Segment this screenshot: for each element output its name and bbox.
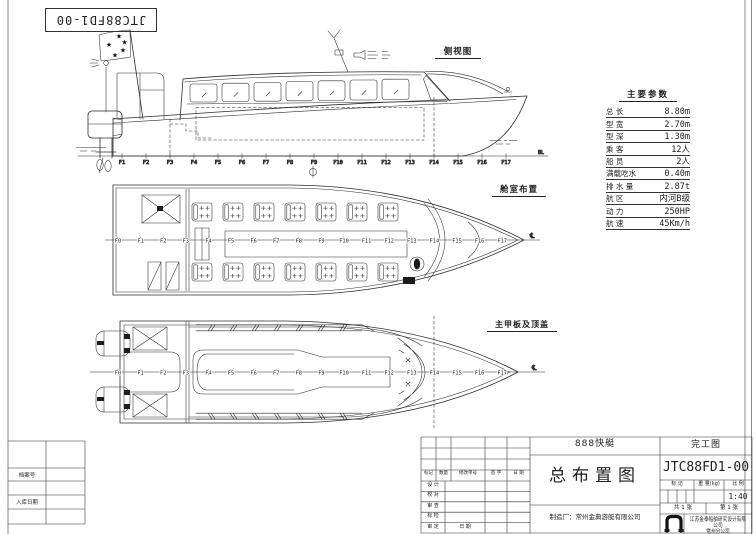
mark-header: 标 记 — [660, 482, 694, 488]
param-row: 总 长8.80m — [606, 106, 690, 118]
frame-label: F11 — [362, 238, 372, 244]
param-value: 1.30m — [664, 132, 690, 142]
param-row: 满载吃水0.40m — [606, 168, 690, 180]
frame-label: F15 — [453, 160, 463, 166]
param-label: 满载吃水 — [606, 168, 636, 179]
frame-label: F4 — [205, 370, 211, 376]
weight-header: 重 量(kg) — [694, 482, 724, 488]
frame-label: F5 — [228, 238, 234, 244]
param-row: 型 宽2.70m — [606, 118, 690, 130]
horn-icon — [354, 51, 390, 60]
param-row: 型 深1.30m — [606, 131, 690, 143]
corner-block-grid — [8, 441, 85, 524]
cabin-view-label: 舱室布置 — [492, 183, 546, 197]
frame-label: F17 — [501, 160, 511, 166]
frame-label: F0 — [115, 238, 121, 244]
drawing-number: JTC88FD1-00 — [660, 461, 752, 475]
param-value: 0.40m — [664, 169, 690, 179]
param-label: 乘 客 — [606, 144, 623, 155]
drawing-number-rotated: JTC88FD1-00 — [56, 13, 146, 27]
drawing-title: 总布置图 — [530, 467, 660, 486]
frame-label: F2 — [160, 238, 166, 244]
frame-label: F16 — [475, 370, 485, 376]
frame-label: F12 — [384, 370, 394, 376]
frame-label: F14 — [430, 238, 440, 244]
frame-label: F3 — [167, 160, 173, 166]
frame-label: F15 — [452, 370, 462, 376]
frame-label: F13 — [405, 160, 415, 166]
drawing-sheet: F1F2F3F4F5F6F7F8F9F10F11F12F13F14F15F16F… — [0, 0, 756, 534]
flag-star-icon: ★ — [120, 47, 126, 55]
frame-label: F17 — [497, 370, 507, 376]
date-label: 日 期 — [445, 525, 485, 531]
param-label: 排 水 量 — [606, 181, 633, 192]
deck-view-label: 主甲板及顶盖 — [487, 319, 557, 332]
parameters-table: 主要参数 总 长8.80m 型 宽2.70m 型 深1.30m 乘 客12人 船… — [606, 88, 690, 230]
frame-label: F6 — [239, 160, 245, 166]
rev-header-mark: 标记 — [421, 472, 436, 477]
frame-label: F13 — [407, 370, 417, 376]
frame-label: F16 — [475, 238, 485, 244]
frame-label: F6 — [250, 370, 256, 376]
frame-label: F5 — [228, 370, 234, 376]
frame-label: F8 — [287, 160, 293, 166]
frame-scale-deck: F0F1F2F3F4F5F6F7F8F9F10F11F12F13F14F15F1… — [115, 369, 507, 376]
frame-label: F9 — [318, 370, 324, 376]
rev-header-sign: 签 字 — [485, 472, 507, 477]
flag-star-icon: ★ — [112, 52, 118, 60]
design-company: 江苏金泰船舶研究设计有限公司 常州分公司 — [689, 517, 747, 534]
frame-label: F10 — [339, 370, 349, 376]
cabin-windows — [190, 76, 448, 103]
param-label: 总 长 — [606, 106, 623, 117]
frame-label: F9 — [311, 160, 317, 166]
param-label: 动 力 — [606, 206, 623, 217]
rev-header-order: 修改单号 — [451, 472, 485, 477]
design-company-name: 江苏金泰船舶研究设计有限公司 — [689, 517, 747, 529]
frame-label: F0 — [115, 370, 121, 376]
param-label: 船 员 — [606, 156, 623, 167]
param-row: 动 力250HP — [606, 205, 690, 217]
company-logo — [665, 517, 684, 533]
frame-label: F3 — [183, 238, 189, 244]
param-value: 2.70m — [664, 120, 690, 130]
deck-plan-view: F0F1F2F3F4F5F6F7F8F9F10F11F12F13F14F15F1… — [90, 316, 545, 428]
frame-label: F4 — [191, 160, 197, 166]
frame-scale-side: F1F2F3F4F5F6F7F8F9F10F11F12F13F14F15F16F… — [119, 154, 511, 167]
frame-label: F10 — [339, 238, 349, 244]
inbound-date-label: 入库日期 — [8, 498, 46, 506]
centerline-mark: ℄ — [531, 364, 537, 372]
param-value: 2.87t — [664, 182, 690, 192]
frame-label: F2 — [143, 160, 149, 166]
frame-label: F1 — [137, 370, 143, 376]
param-value: 内河B级 — [659, 192, 690, 204]
outboard-motors-plan — [96, 331, 130, 412]
sheets-total: 共 1 张 — [660, 505, 706, 511]
frame-label: F1 — [137, 238, 143, 244]
frame-label: F7 — [273, 238, 279, 244]
frame-label: F12 — [384, 238, 394, 244]
stern-light-icon — [90, 59, 108, 112]
frame-label: F10 — [333, 160, 343, 166]
frame-label: F6 — [250, 238, 256, 244]
rev-header-date: 日 期 — [507, 472, 530, 477]
parameters-title: 主要参数 — [619, 88, 677, 102]
flag-star-icon: ★ — [106, 41, 112, 49]
frame-label: F11 — [362, 370, 372, 376]
frame-label: F8 — [296, 370, 302, 376]
frame-label: F3 — [183, 370, 189, 376]
drawing-stage: 完工图 — [660, 441, 752, 451]
sign-row-design: 设 计 — [421, 483, 445, 489]
frame-label: F2 — [160, 370, 166, 376]
param-label: 航 区 — [606, 193, 623, 204]
frame-label: F5 — [215, 160, 221, 166]
steering-wheel-icon — [403, 257, 424, 284]
manufacturer: 制造厂：常州金典游艇有限公司 — [530, 514, 660, 521]
param-value: 2人 — [676, 155, 690, 167]
sign-row-approve: 审 定 — [421, 525, 445, 531]
frame-label: F1 — [119, 160, 125, 166]
sign-row-standard: 标 检 — [421, 514, 445, 520]
frame-label: F9 — [318, 238, 324, 244]
frame-label: F17 — [497, 238, 507, 244]
param-label: 型 宽 — [606, 119, 623, 130]
frame-label: F15 — [452, 238, 462, 244]
frame-label: F14 — [429, 160, 439, 166]
drawing-canvas: F1F2F3F4F5F6F7F8F9F10F11F12F13F14F15F16F… — [0, 0, 756, 534]
frame-label: F12 — [381, 160, 391, 166]
frame-label: F16 — [477, 160, 487, 166]
side-view-label: 侧视图 — [435, 45, 481, 59]
param-row: 乘 客12人 — [606, 143, 690, 155]
scale-value: 1:40 — [724, 493, 752, 502]
sheet-number: 第 1 张 — [706, 505, 752, 511]
baseline-mark: BL — [538, 150, 544, 156]
design-company-branch: 常州分公司 — [689, 529, 747, 534]
sign-row-review: 审 查 — [421, 504, 445, 510]
rev-header-qty: 数量 — [436, 472, 451, 477]
param-value: 250HP — [664, 207, 690, 217]
frame-scale-cabin: F0F1F2F3F4F5F6F7F8F9F10F11F12F13F14F15F1… — [115, 237, 507, 244]
param-value: 45Km/h — [659, 219, 690, 229]
frame-label: F13 — [407, 238, 417, 244]
param-row: 船 员2人 — [606, 156, 690, 168]
param-row: 航 速45Km/h — [606, 218, 690, 230]
archive-number-label: 档案号 — [8, 471, 46, 479]
frame-label: F14 — [430, 370, 440, 376]
param-label: 航 速 — [606, 218, 623, 229]
cabin-plan-view: F0F1F2F3F4F5F6F7F8F9F10F11F12F13F14F15F1… — [105, 185, 540, 295]
param-row: 排 水 量2.87t — [606, 180, 690, 192]
centerline-symbol — [310, 167, 317, 178]
frame-label: F7 — [263, 160, 269, 166]
frame-label: F11 — [357, 160, 367, 166]
stern-rail — [117, 73, 164, 119]
flag-star-icon: ★ — [121, 39, 127, 47]
param-label: 型 深 — [606, 131, 623, 142]
flag-stars: ★ ★ ★ ★ ★ — [106, 33, 128, 60]
outboard-motor-side — [88, 111, 122, 173]
frame-label: F7 — [273, 370, 279, 376]
engine-hatch — [142, 195, 180, 223]
stern-lockers — [148, 262, 179, 290]
centerline-mark: ℄ — [529, 232, 535, 240]
param-value: 12人 — [671, 143, 690, 155]
sign-row-check: 校 对 — [421, 493, 445, 499]
param-row: 航 区内河B级 — [606, 193, 690, 205]
param-value: 8.80m — [664, 107, 690, 117]
frame-label: F8 — [296, 238, 302, 244]
drawing-number-topbox: JTC88FD1-00 — [45, 8, 157, 32]
mast-icon — [328, 30, 348, 72]
frame-label: F4 — [205, 238, 211, 244]
scale-header: 比 例 — [724, 482, 752, 488]
product-name: 888快艇 — [530, 440, 660, 450]
